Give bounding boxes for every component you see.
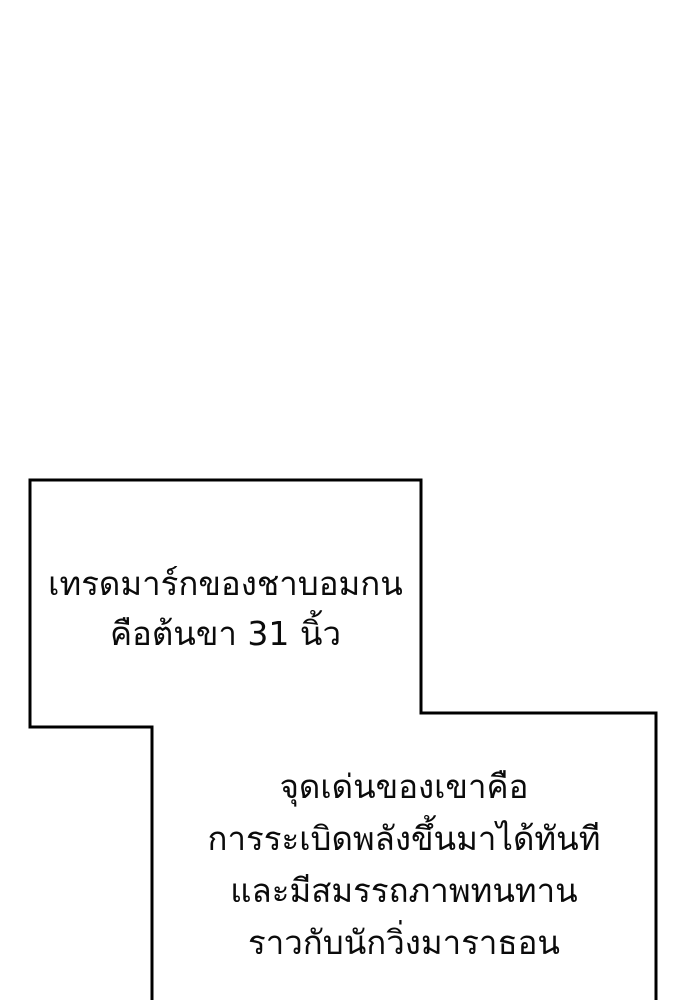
comic-page: เทรดมาร์กของชาบอมกน คือต้นขา 31 นิ้ว จุด… <box>0 0 690 1000</box>
speech-box-top: เทรดมาร์กของชาบอมกน คือต้นขา 31 นิ้ว <box>33 483 418 724</box>
speech-line: และมีสมรรถภาพทนทาน <box>230 865 577 917</box>
speech-line: คือต้นขา 31 นิ้ว <box>110 609 341 659</box>
speech-line: ราวกับนักวิ่งมาราธอน <box>248 917 560 969</box>
speech-box-bottom: จุดเด่นของเขาคือ การระเบิดพลังขึ้นมาได้ท… <box>155 716 653 1000</box>
speech-line: เทรดมาร์กของชาบอมกน <box>48 559 403 609</box>
speech-line: การระเบิดพลังขึ้นมาได้ทันที <box>208 813 601 865</box>
speech-line: จุดเด่นของเขาคือ <box>280 761 529 813</box>
